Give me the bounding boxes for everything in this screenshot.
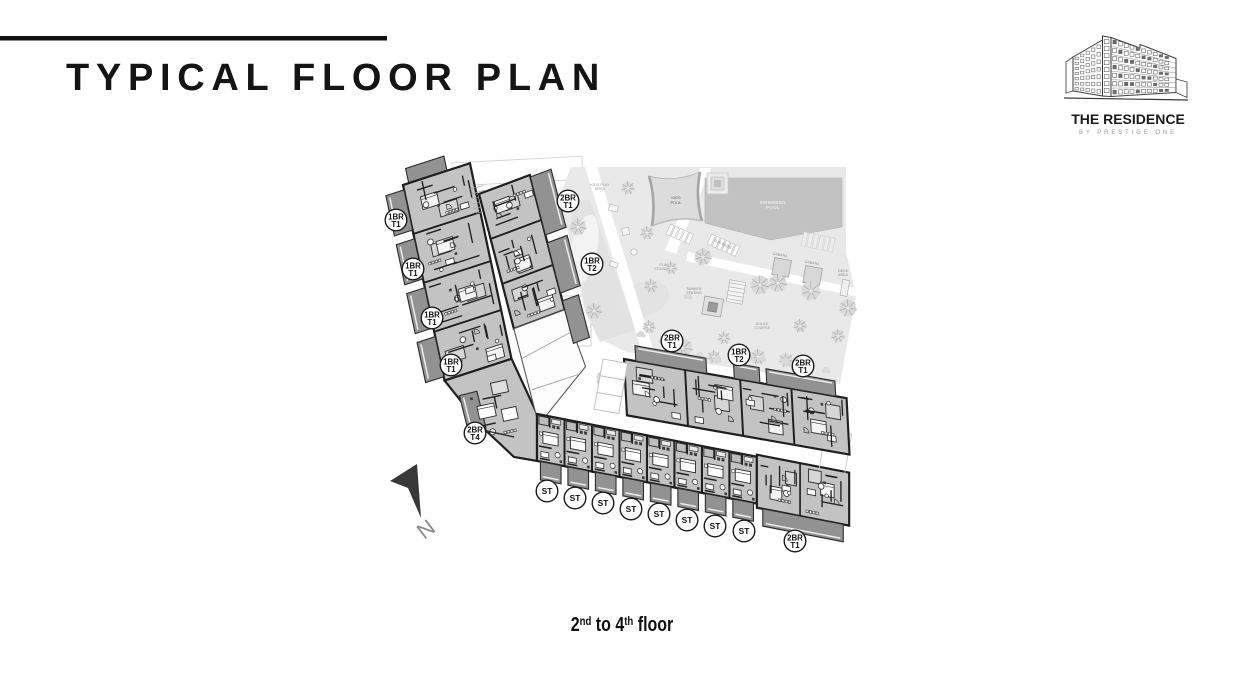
svg-text:T1: T1 xyxy=(790,541,800,550)
svg-text:ST: ST xyxy=(739,526,751,536)
svg-text:N: N xyxy=(412,514,440,543)
svg-text:T1: T1 xyxy=(391,220,401,229)
svg-text:ST: ST xyxy=(682,515,694,525)
svg-text:COURSE: COURSE xyxy=(754,326,771,330)
svg-text:T1: T1 xyxy=(427,318,437,327)
svg-text:T2: T2 xyxy=(734,355,744,364)
svg-text:T1: T1 xyxy=(408,269,418,278)
svg-text:ST: ST xyxy=(710,521,722,531)
svg-text:T1: T1 xyxy=(563,201,573,210)
svg-text:ST: ST xyxy=(626,504,638,514)
svg-text:POOL: POOL xyxy=(670,200,682,205)
svg-text:T4: T4 xyxy=(470,433,480,442)
svg-text:T2: T2 xyxy=(587,264,597,273)
svg-text:TYPICAL FLOOR PLAN: TYPICAL FLOOR PLAN xyxy=(66,57,606,99)
svg-text:ST: ST xyxy=(654,509,666,519)
svg-text:THE RESIDENCE: THE RESIDENCE xyxy=(1071,111,1185,127)
svg-text:AREA: AREA xyxy=(838,273,848,277)
svg-text:2nd to 4th floor: 2nd to 4th floor xyxy=(571,613,674,635)
svg-text:T1: T1 xyxy=(798,366,808,375)
svg-text:T1: T1 xyxy=(667,341,677,350)
svg-text:ST: ST xyxy=(570,493,582,503)
svg-text:POOL: POOL xyxy=(766,205,780,210)
svg-text:BY PRESTIGE ONE: BY PRESTIGE ONE xyxy=(1079,130,1177,136)
svg-text:ST: ST xyxy=(598,498,610,508)
svg-text:ST: ST xyxy=(542,486,554,496)
svg-text:T1: T1 xyxy=(446,365,456,374)
svg-text:AREA: AREA xyxy=(595,187,606,191)
